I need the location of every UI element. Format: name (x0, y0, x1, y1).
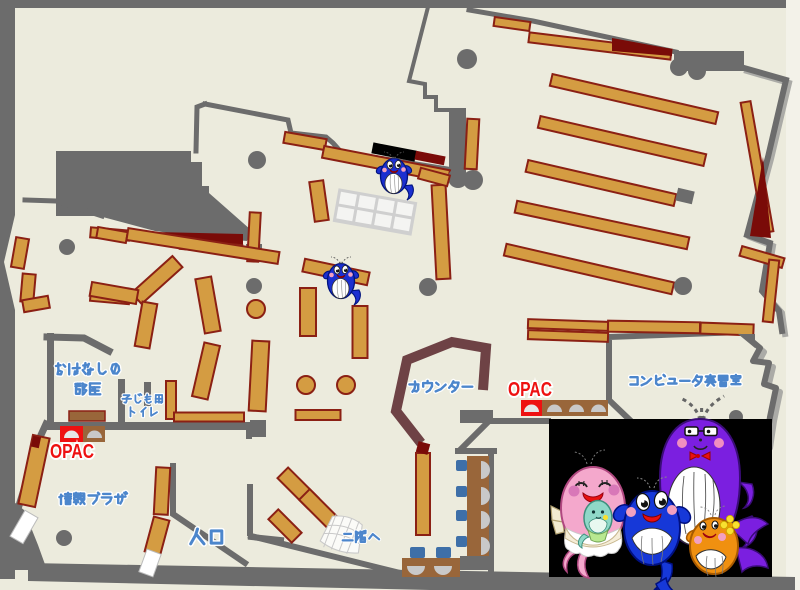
svg-text:OPAC: OPAC (50, 441, 94, 463)
svg-text:OPAC: OPAC (508, 379, 552, 401)
